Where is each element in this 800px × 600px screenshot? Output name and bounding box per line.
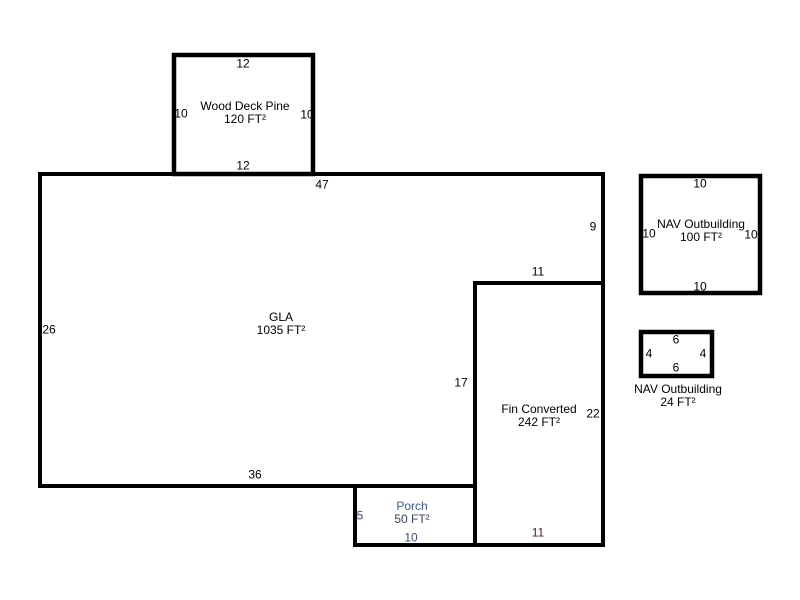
gla-dim-bottom: 36 — [248, 469, 261, 482]
gla-dim-right-upper: 9 — [590, 221, 597, 234]
gla-dim-notch-top: 11 — [532, 266, 544, 279]
wood-deck-label: Wood Deck Pine 120 FT² — [200, 100, 289, 126]
fin-converted-label: Fin Converted 242 FT² — [501, 403, 576, 429]
nav-large-label: NAV Outbuilding 100 FT² — [657, 218, 745, 244]
fin-converted-dim-right: 22 — [586, 408, 599, 421]
nav-small-dim-left: 4 — [646, 348, 653, 361]
gla-dim-left: 26 — [42, 324, 55, 337]
wood-deck-dim-left: 10 — [174, 108, 187, 121]
floorplan-sketch: 12 10 10 12 Wood Deck Pine 120 FT² 47 9 … — [0, 0, 800, 600]
wood-deck-dim-top: 12 — [236, 58, 249, 71]
gla-dim-notch-side: 17 — [454, 377, 467, 390]
gla-dim-top: 47 — [315, 179, 328, 192]
nav-small-dim-right: 4 — [700, 348, 707, 361]
wood-deck-dim-right: 10 — [300, 109, 313, 122]
nav-large-dim-right: 10 — [744, 229, 757, 242]
nav-small-dim-top: 6 — [673, 334, 680, 347]
nav-small-area: 24 FT² — [634, 396, 722, 409]
porch-dim-left: 5 — [357, 510, 364, 523]
nav-large-dim-bottom: 10 — [693, 281, 706, 294]
porch-area: 50 FT² — [394, 513, 429, 526]
nav-small-dim-bottom: 6 — [673, 362, 680, 375]
nav-large-dim-top: 10 — [693, 178, 706, 191]
porch-dim-bottom: 10 — [404, 532, 417, 545]
fin-converted-area: 242 FT² — [501, 416, 576, 429]
porch-label: Porch 50 FT² — [394, 500, 429, 526]
wood-deck-dim-bottom: 12 — [236, 160, 249, 173]
gla-area: 1035 FT² — [257, 324, 306, 337]
nav-large-dim-left: 10 — [642, 228, 655, 241]
wood-deck-area: 120 FT² — [200, 113, 289, 126]
gla-label: GLA 1035 FT² — [257, 311, 306, 337]
nav-small-label: NAV Outbuilding 24 FT² — [634, 383, 722, 409]
fin-converted-dim-bottom: 11 — [532, 527, 544, 540]
nav-large-area: 100 FT² — [657, 231, 745, 244]
